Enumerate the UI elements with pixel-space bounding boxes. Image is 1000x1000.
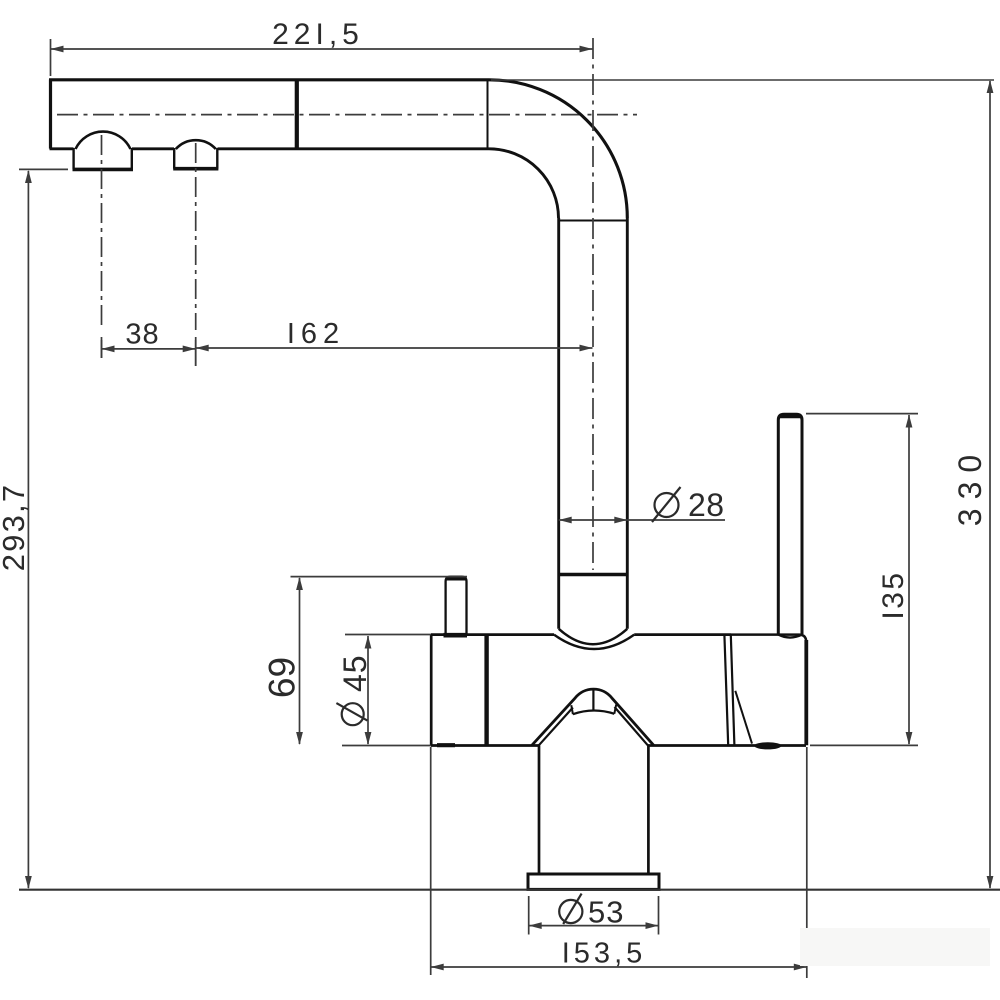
svg-text:38: 38 bbox=[125, 319, 159, 351]
svg-text:293,7: 293,7 bbox=[0, 483, 31, 572]
svg-text:69: 69 bbox=[262, 657, 303, 698]
svg-text:53: 53 bbox=[588, 895, 624, 930]
svg-text:45: 45 bbox=[337, 654, 373, 692]
svg-text:22I,5: 22I,5 bbox=[272, 18, 364, 51]
svg-text:28: 28 bbox=[688, 487, 725, 523]
svg-text:I62: I62 bbox=[287, 318, 345, 350]
svg-text:I53,5: I53,5 bbox=[562, 938, 647, 970]
svg-text:I35: I35 bbox=[877, 570, 910, 619]
svg-text:330: 330 bbox=[952, 446, 988, 526]
